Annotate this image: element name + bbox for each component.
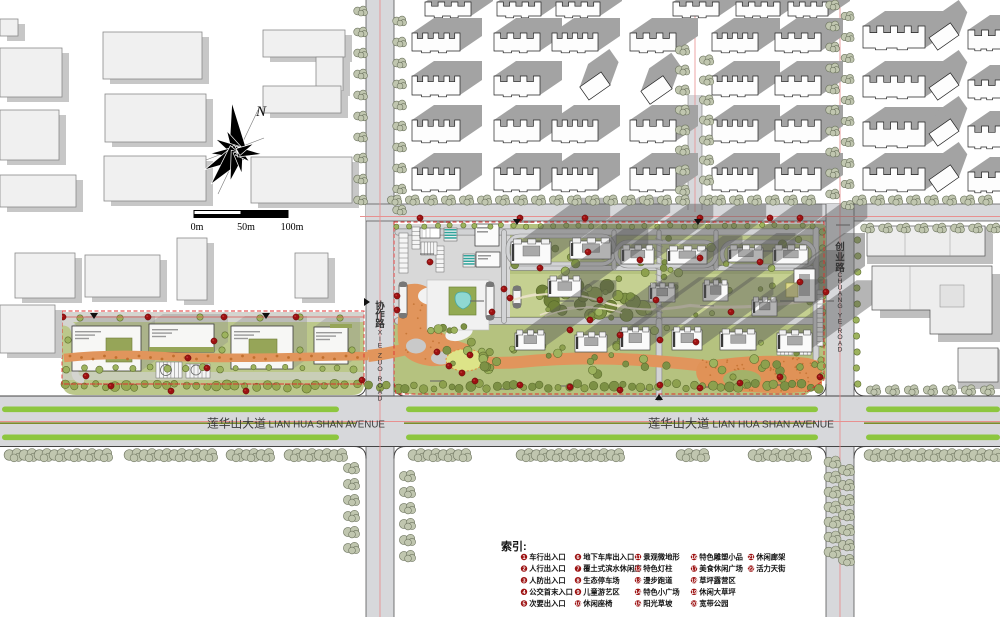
svg-text:19: 19 bbox=[691, 590, 697, 596]
svg-text:宽带公园: 宽带公园 bbox=[698, 599, 728, 608]
svg-text:6: 6 bbox=[576, 555, 579, 561]
svg-text:21: 21 bbox=[748, 555, 754, 561]
svg-text:索引:: 索引: bbox=[501, 539, 527, 553]
svg-text:18: 18 bbox=[691, 578, 697, 584]
svg-text:特色雕塑小品: 特色雕塑小品 bbox=[699, 553, 743, 562]
svg-text:次要出入口: 次要出入口 bbox=[529, 599, 565, 608]
svg-text:100m: 100m bbox=[281, 222, 304, 233]
svg-text:11: 11 bbox=[635, 555, 641, 561]
svg-text:22: 22 bbox=[748, 567, 754, 573]
svg-text:阳光草坡: 阳光草坡 bbox=[643, 599, 673, 608]
svg-text:N: N bbox=[255, 104, 267, 120]
svg-text:人防出入口: 人防出入口 bbox=[529, 576, 565, 585]
svg-text:17: 17 bbox=[691, 567, 697, 573]
svg-text:车行出入口: 车行出入口 bbox=[529, 553, 565, 562]
svg-text:儿童游艺区: 儿童游艺区 bbox=[582, 587, 620, 596]
svg-text:8: 8 bbox=[576, 578, 579, 584]
svg-text:生态停车场: 生态停车场 bbox=[583, 576, 619, 585]
svg-text:特色小广场: 特色小广场 bbox=[643, 587, 679, 596]
svg-text:10: 10 bbox=[575, 602, 581, 608]
svg-text:公交首末入口: 公交首末入口 bbox=[529, 587, 573, 596]
svg-text:2: 2 bbox=[522, 567, 525, 573]
svg-text:1: 1 bbox=[522, 555, 525, 561]
svg-text:莲华山大道 LIAN HUA SHAN AVENUE: 莲华山大道 LIAN HUA SHAN AVENUE bbox=[207, 417, 385, 431]
svg-text:50m: 50m bbox=[237, 222, 255, 233]
svg-text:草坪露营区: 草坪露营区 bbox=[699, 576, 736, 585]
svg-text:14: 14 bbox=[635, 590, 642, 596]
svg-text:地下车库出入口: 地下车库出入口 bbox=[583, 553, 634, 562]
svg-text:13: 13 bbox=[635, 578, 641, 584]
svg-text:漫步跑道: 漫步跑道 bbox=[643, 576, 673, 585]
svg-text:16: 16 bbox=[691, 555, 697, 561]
svg-text:休闲廊架: 休闲廊架 bbox=[755, 553, 786, 562]
svg-text:特色灯柱: 特色灯柱 bbox=[643, 564, 673, 573]
svg-text:人行出入口: 人行出入口 bbox=[529, 564, 565, 573]
svg-text:休闲大草坪: 休闲大草坪 bbox=[698, 587, 736, 596]
svg-text:15: 15 bbox=[635, 602, 641, 608]
svg-text:9: 9 bbox=[576, 590, 579, 596]
svg-text:景观微地形: 景观微地形 bbox=[642, 553, 680, 562]
svg-text:20: 20 bbox=[691, 602, 697, 608]
svg-text:活力天街: 活力天街 bbox=[756, 564, 786, 573]
svg-text:5: 5 bbox=[522, 602, 525, 608]
svg-text:美食休闲广场: 美食休闲广场 bbox=[699, 564, 743, 573]
svg-text:3: 3 bbox=[522, 578, 525, 584]
svg-text:12: 12 bbox=[635, 567, 641, 573]
svg-text:莲华山大道 LIAN HUA SHAN AVENUE: 莲华山大道 LIAN HUA SHAN AVENUE bbox=[648, 417, 834, 431]
svg-text:休闲座椅: 休闲座椅 bbox=[582, 599, 613, 608]
svg-text:覆土式滨水休闲廊: 覆土式滨水休闲廊 bbox=[582, 564, 642, 573]
svg-text:0m: 0m bbox=[191, 222, 204, 233]
svg-text:7: 7 bbox=[576, 567, 579, 573]
